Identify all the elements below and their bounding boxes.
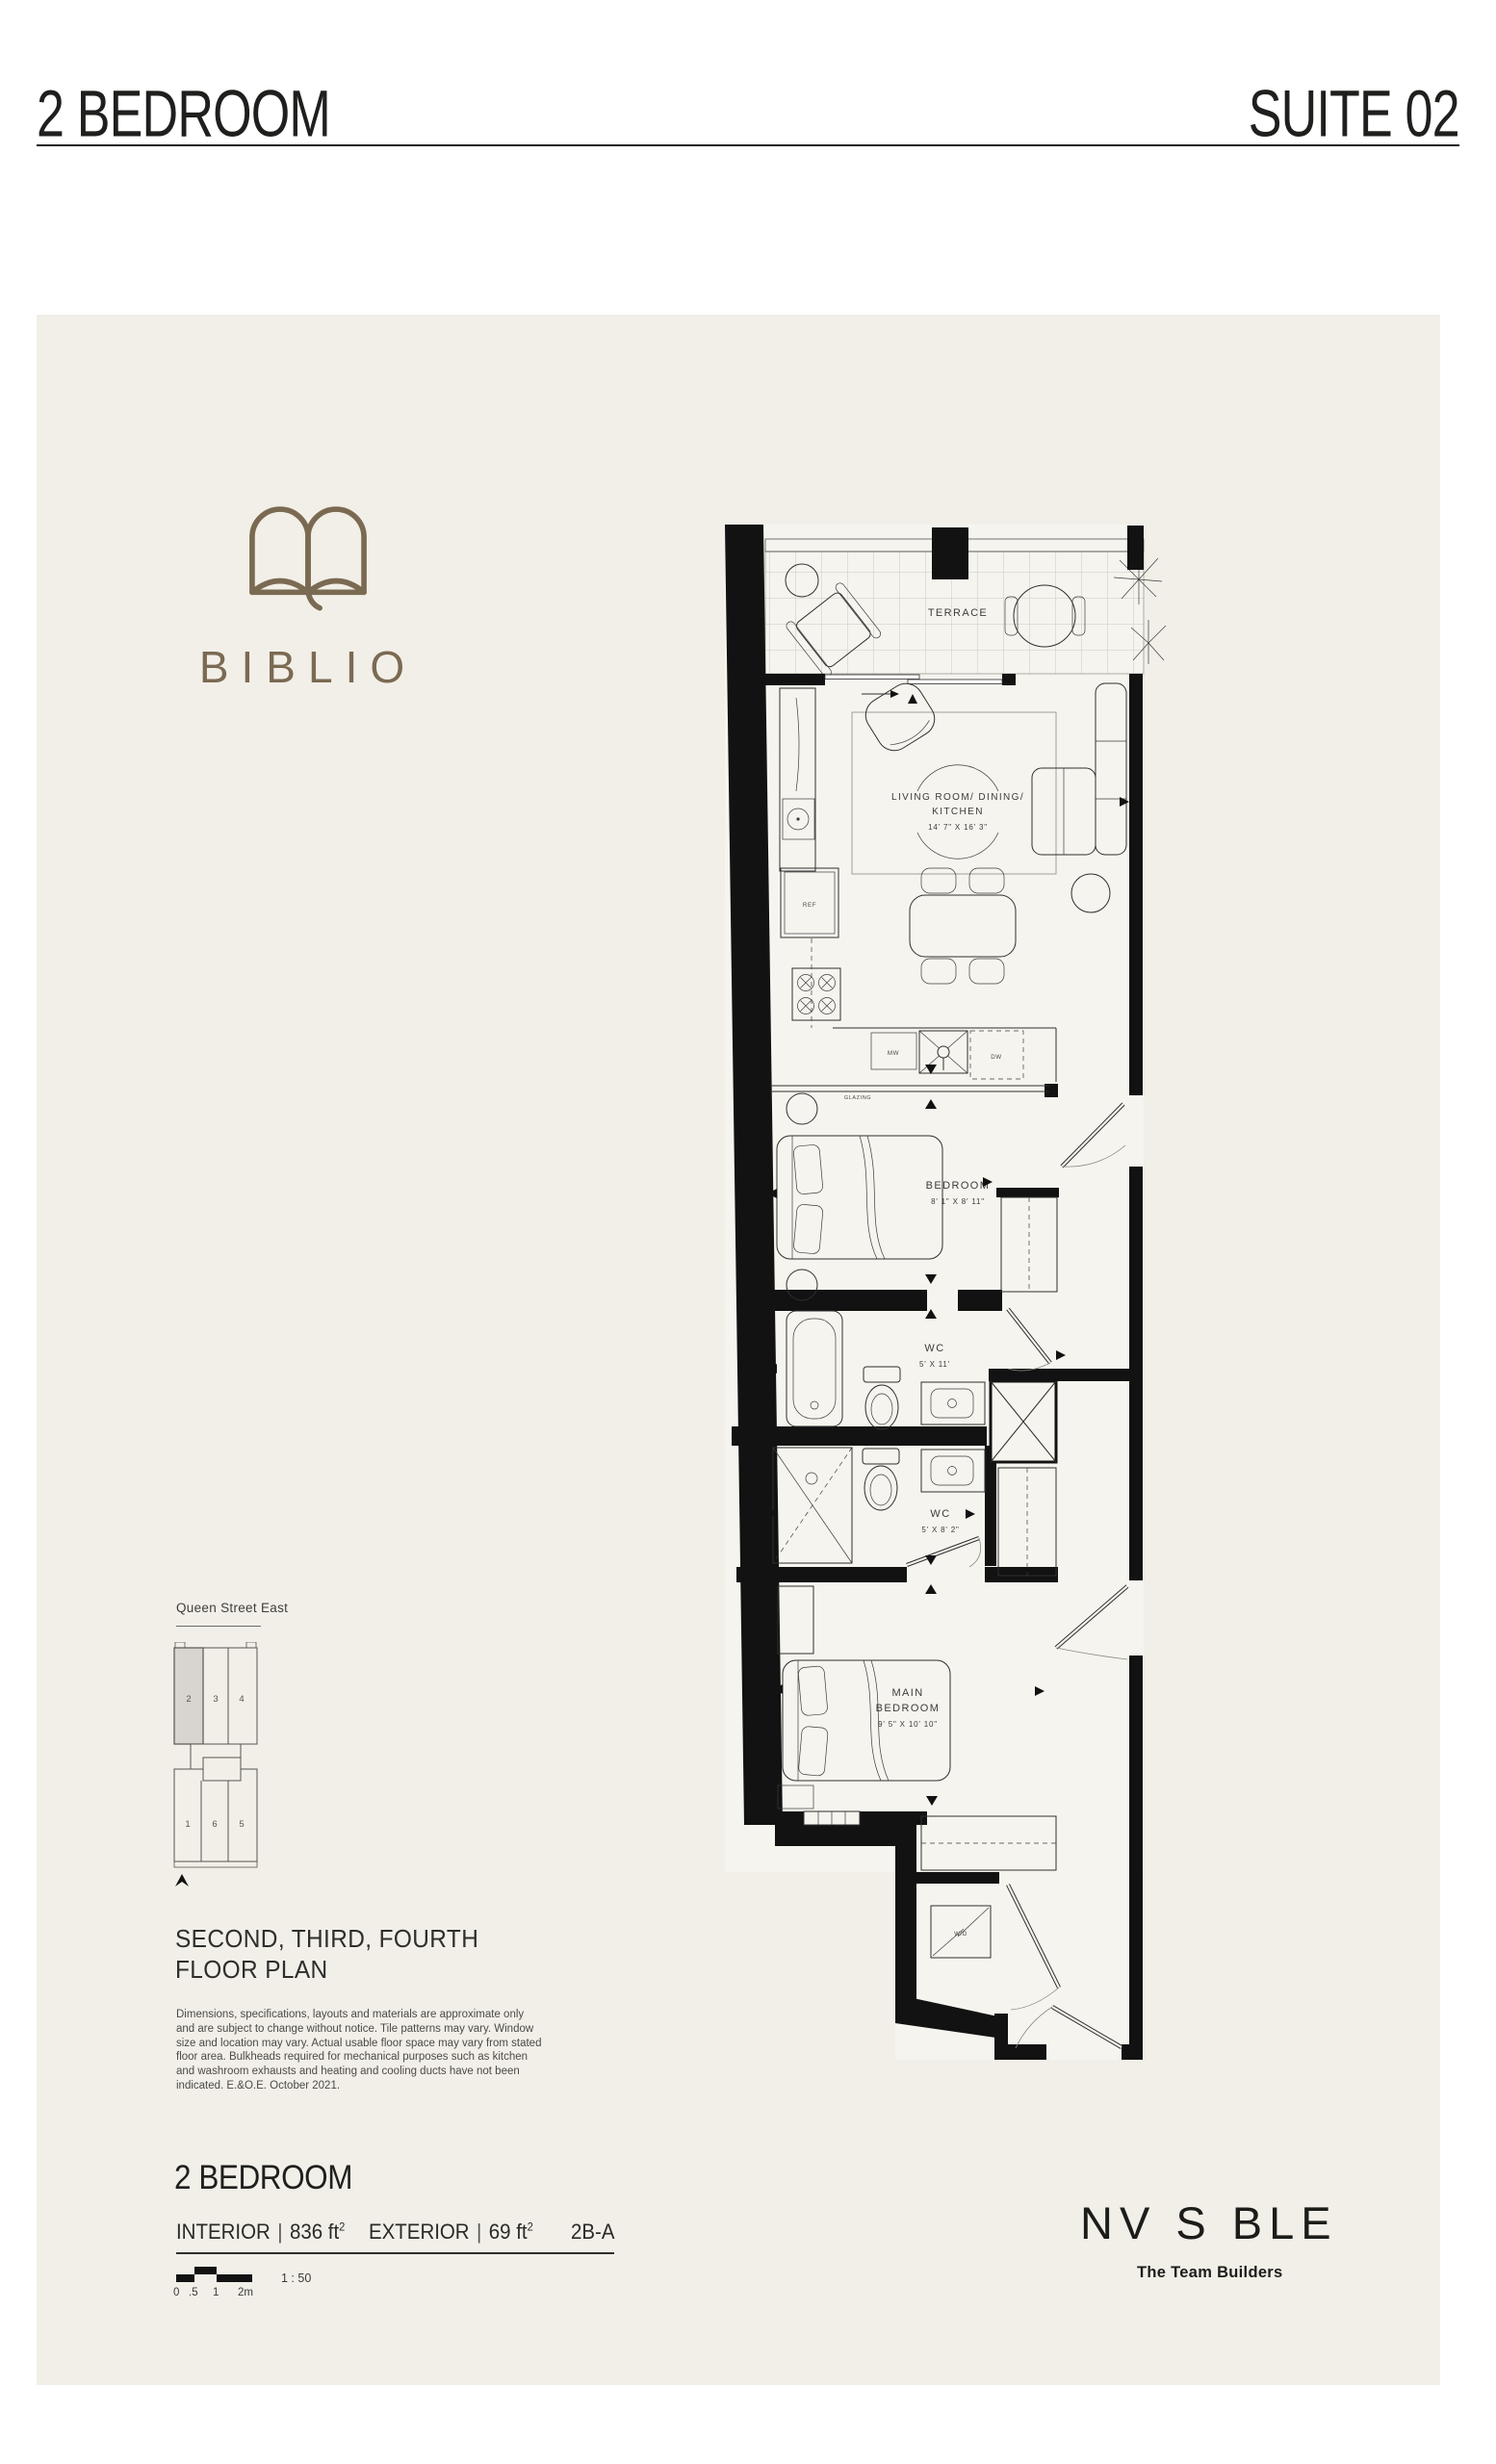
main-bedroom-dim: 9' 5" X 10' 10" [878, 1720, 938, 1729]
washer-dryer-label: W/D [954, 1931, 967, 1938]
floorplan-title-line1: SECOND, THIRD, FOURTH [175, 1923, 478, 1954]
exterior-stat: EXTERIOR|69 ft2 [369, 2220, 533, 2245]
microwave-label: MW [888, 1050, 899, 1057]
main-bedroom-label-1: MAIN [891, 1687, 923, 1699]
unit-code: 2B-A [571, 2220, 614, 2245]
developer-logo: NV S BLE [1080, 2196, 1338, 2249]
disclaimer: Dimensions, specifications, layouts and … [176, 2008, 542, 2093]
developer-tagline: The Team Builders [1137, 2264, 1283, 2282]
window [804, 1811, 860, 1825]
dishwasher-label: DW [991, 1054, 1002, 1061]
brand-wordmark: BIBLIO [183, 641, 433, 693]
wc2-label: WC [930, 1508, 950, 1520]
bedroom-label: BEDROOM [926, 1180, 991, 1192]
page-title: 2 BEDROOM [37, 77, 330, 152]
floorplan-title-line2: FLOOR PLAN [175, 1954, 478, 1985]
main-bedroom-label-2: BEDROOM [876, 1703, 941, 1714]
stats-rule [176, 2252, 614, 2254]
shaft [991, 1381, 1056, 1462]
interior-value: 836 ft [290, 2220, 339, 2244]
unit-type: 2 BEDROOM [174, 2159, 352, 2197]
terrace-label: TERRACE [928, 607, 988, 619]
scale-tick-2m: 2m [238, 2287, 253, 2298]
floorplan-title: SECOND, THIRD, FOURTH FLOOR PLAN [175, 1923, 478, 1985]
keyplan-suite-5: 5 [239, 1819, 244, 1830]
scale-tick-1: 1 [213, 2287, 219, 2298]
floorplan-page: 2 BEDROOM SUITE 02 BIBLIO [0, 0, 1496, 2464]
exterior-value: 69 ft [489, 2220, 528, 2244]
living-label-1: LIVING ROOM/ DINING/ [891, 792, 1024, 803]
interior-label: INTERIOR [176, 2220, 271, 2244]
keyplan-street-rule [176, 1626, 261, 1627]
keyplan-street: Queen Street East [176, 1601, 288, 1615]
exterior-label: EXTERIOR [369, 2220, 470, 2244]
floor-plan: TERRACE [717, 520, 1170, 2065]
keyplan-suite-3: 3 [213, 1694, 218, 1705]
scale-tick-0: 0 [173, 2287, 179, 2298]
bedroom-dim: 8' 1" X 8' 11" [931, 1197, 985, 1206]
wc1-label: WC [924, 1343, 944, 1354]
living-dim: 14' 7" X 16' 3" [928, 823, 988, 832]
keyplan-suite-4: 4 [239, 1694, 244, 1705]
key-plan: 2 3 4 1 6 5 [171, 1642, 263, 1892]
north-arrow-icon [175, 1874, 189, 1886]
exterior-sup: 2 [528, 2220, 533, 2234]
fridge-label: REF [803, 902, 816, 909]
living-label-2: KITCHEN [932, 807, 984, 817]
header-rule [37, 144, 1459, 146]
suite-number: SUITE 02 [1249, 77, 1459, 152]
scale-tick-05: .5 [189, 2287, 198, 2298]
interior-stat: INTERIOR|836 ft2 [176, 2220, 345, 2245]
wc1-dim: 5' X 11' [919, 1360, 950, 1369]
wc2-dim: 5' X 8' 2" [921, 1526, 959, 1534]
scale-ratio: 1 : 50 [281, 2271, 311, 2285]
book-icon [245, 497, 371, 616]
keyplan-suite-2: 2 [186, 1694, 191, 1705]
scale-ticks: 0 .5 1 2m [176, 2287, 292, 2302]
scale-bar [176, 2266, 292, 2285]
keyplan-suite-1: 1 [185, 1819, 190, 1830]
keyplan-suite-6: 6 [212, 1819, 217, 1830]
interior-sup: 2 [339, 2220, 345, 2234]
glazing-label: GLAZING [844, 1095, 871, 1101]
